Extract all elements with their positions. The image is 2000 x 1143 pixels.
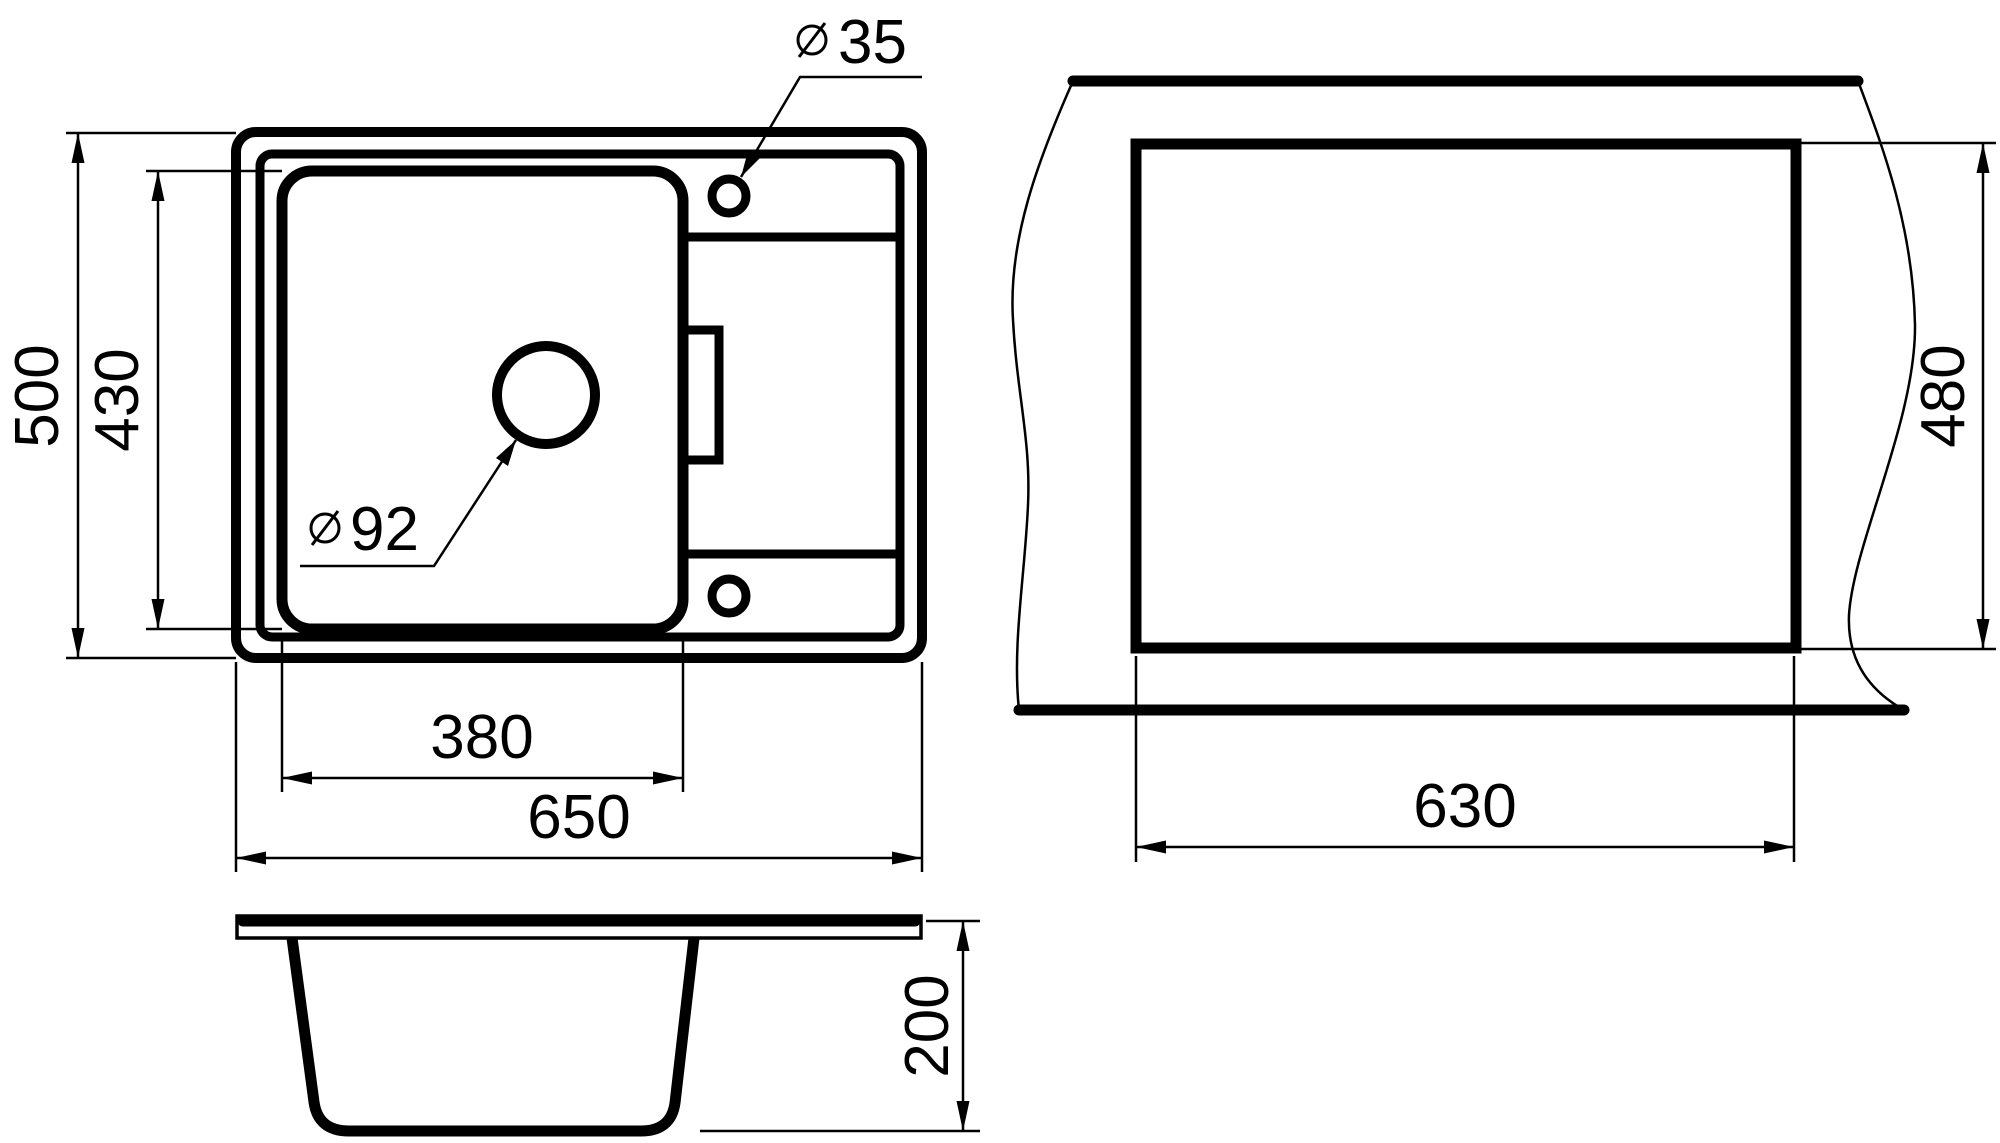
leader-arrowhead (496, 440, 516, 466)
dimension-arrowhead (282, 772, 312, 785)
technical-drawing-sink: 35 92 500 430 (0, 0, 2000, 1143)
dimension-value: 650 (527, 783, 630, 852)
dimension-overall-width: 650 (236, 662, 922, 872)
dimension-value: 380 (430, 703, 533, 772)
sink-rim-edge (260, 154, 900, 637)
dimension-arrowhead (152, 171, 165, 201)
faucet-hole (712, 179, 746, 213)
top-view: 35 92 500 430 (3, 8, 922, 872)
dimension-arrowhead (1136, 841, 1166, 854)
dimension-arrowhead (72, 133, 85, 163)
dimension-bowl-height: 200 (700, 921, 980, 1131)
dimension-cutout-width: 630 (1136, 656, 1794, 862)
leader-drain-diameter: 92 (300, 440, 516, 566)
faucet-hole-alt (712, 579, 746, 613)
bowl-side-tab (687, 330, 719, 460)
dimension-cutout-depth: 480 (1800, 143, 1996, 649)
break-line-left (1012, 81, 1073, 710)
dimension-arrowhead (957, 1101, 970, 1131)
cutout-view: 480 630 (1012, 81, 1996, 862)
dimension-value: 200 (893, 974, 962, 1077)
dimension-value: 430 (83, 348, 152, 451)
dimension-arrowhead (653, 772, 683, 785)
dimension-value: 630 (1413, 772, 1516, 841)
dimension-value: 500 (3, 344, 72, 447)
dimension-arrowhead (1764, 841, 1794, 854)
dimension-bowl-depth: 430 (83, 171, 282, 629)
drain-hole (497, 346, 595, 444)
dimension-arrowhead (72, 628, 85, 658)
diameter-symbol (798, 23, 826, 57)
dimension-arrowhead (1977, 619, 1990, 649)
bowl-edge (282, 171, 683, 629)
side-view: 200 (237, 916, 980, 1131)
sink-outer-edge (236, 132, 922, 658)
faucet-diameter-value: 35 (838, 8, 907, 77)
dimension-arrowhead (1977, 143, 1990, 173)
dimension-arrowhead (892, 852, 922, 865)
drawing-svg: 35 92 500 430 (0, 0, 2000, 1143)
drain-diameter-value: 92 (350, 495, 419, 564)
dimension-value: 480 (1909, 344, 1978, 447)
dimension-arrowhead (236, 852, 266, 865)
cutout-rectangle (1136, 144, 1796, 648)
dimension-arrowhead (152, 599, 165, 629)
diameter-symbol (311, 511, 339, 545)
bowl-profile (292, 938, 694, 1131)
break-line-right (1849, 81, 1915, 710)
dimension-arrowhead (957, 921, 970, 951)
